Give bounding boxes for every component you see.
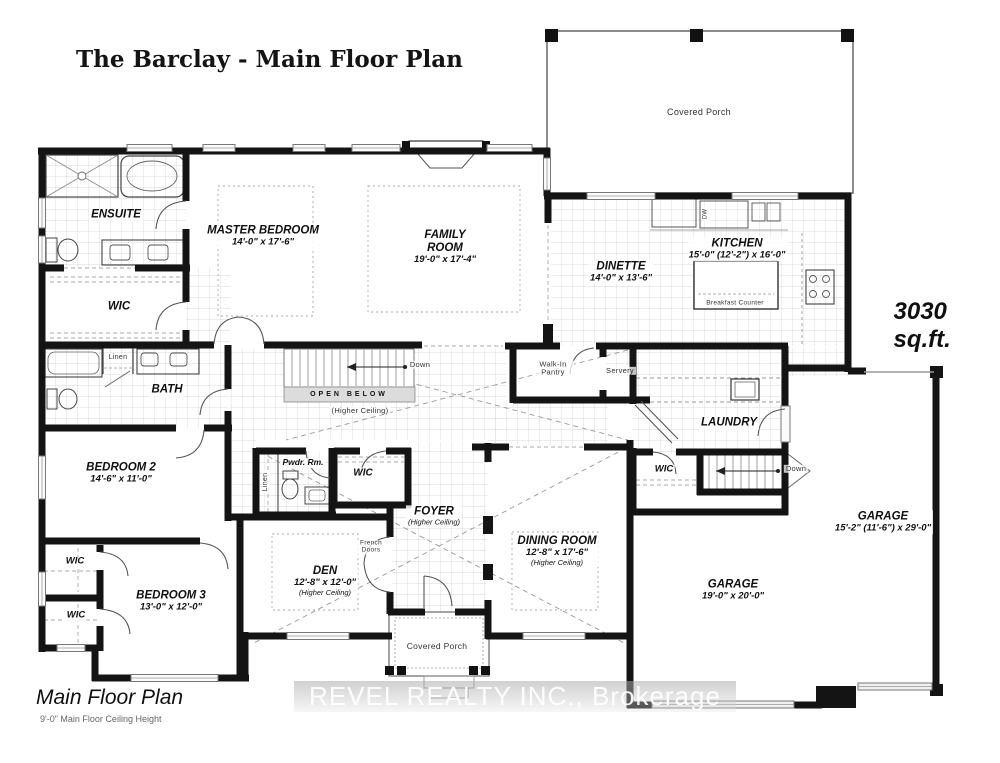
- room-label-bedroom3-wic-a: WIC: [64, 557, 86, 568]
- room-label-laundry-wic: WIC: [653, 465, 675, 476]
- footer-plan-name: Main Floor Plan: [36, 686, 183, 710]
- label-walk-in-pantry: Walk-In Pantry: [532, 361, 574, 378]
- label-servery: Servery: [604, 367, 636, 375]
- label-french-doors: French Doors: [353, 540, 389, 555]
- room-label-bath: BATH: [149, 384, 184, 397]
- label-open-below: OPEN BELOW: [308, 391, 390, 399]
- label-down-main: Down: [408, 361, 432, 369]
- label-open-below-note: (Higher Ceiling): [330, 407, 391, 415]
- room-label-ensuite: ENSUITE: [89, 209, 143, 222]
- room-label-master-wic: WIC: [106, 301, 132, 314]
- brokerage-watermark: REVEL REALTY INC., Brokerage: [294, 681, 736, 712]
- room-label-bedroom3-wic-b: WIC: [65, 611, 87, 622]
- room-label-laundry: LAUNDRY: [699, 417, 759, 430]
- room-label-foyer-wic: WIC: [351, 467, 374, 478]
- footer-ceiling-note: 9'-0" Main Floor Ceiling Height: [40, 714, 161, 724]
- room-label-master-bedroom: MASTER BEDROOM14'-0" x 17'-6": [205, 224, 321, 248]
- room-label-den: DEN12'-8" x 12'-0"(Higher Ceiling): [292, 565, 358, 597]
- room-label-family-room: FAMILY ROOM19'-0" x 17'-4": [412, 229, 478, 265]
- label-linen-bath: Linen: [107, 354, 130, 362]
- room-label-garage-main: GARAGE19'-0" x 20'-0": [700, 578, 766, 602]
- label-down-garage: Down: [784, 465, 808, 473]
- room-label-bedroom-2: BEDROOM 214'-6" x 11'-0": [84, 461, 158, 485]
- label-dishwasher: DW: [703, 207, 710, 222]
- page-title: The Barclay - Main Floor Plan: [76, 46, 463, 73]
- room-label-dinette: DINETTE14'-0" x 13'-6": [588, 260, 654, 284]
- label-linen-hall: Linen: [262, 471, 270, 494]
- label-front-porch: Covered Porch: [405, 642, 470, 652]
- room-label-kitchen: KITCHEN15'-0" (12'-2") x 16'-0": [687, 237, 788, 261]
- floorplan-drawing: [0, 0, 1000, 763]
- room-label-powder-room: Pwdr. Rm.: [280, 458, 325, 468]
- room-label-foyer: FOYER(Higher Ceiling): [406, 505, 462, 526]
- room-label-garage-side: GARAGE15'-2" (11'-6") x 29'-0": [833, 510, 933, 534]
- floor-plan-page: The Barclay - Main Floor Plan 3030 sq.ft…: [0, 0, 1000, 763]
- label-breakfast-counter: Breakfast Counter: [704, 299, 766, 306]
- label-rear-porch: Covered Porch: [665, 107, 733, 117]
- square-footage-label: 3030 sq.ft.: [894, 298, 965, 354]
- room-label-dining-room: DINING ROOM12'-8" x 17'-6"(Higher Ceilin…: [515, 535, 598, 567]
- room-label-bedroom-3: BEDROOM 313'-0" x 12'-0": [134, 589, 208, 613]
